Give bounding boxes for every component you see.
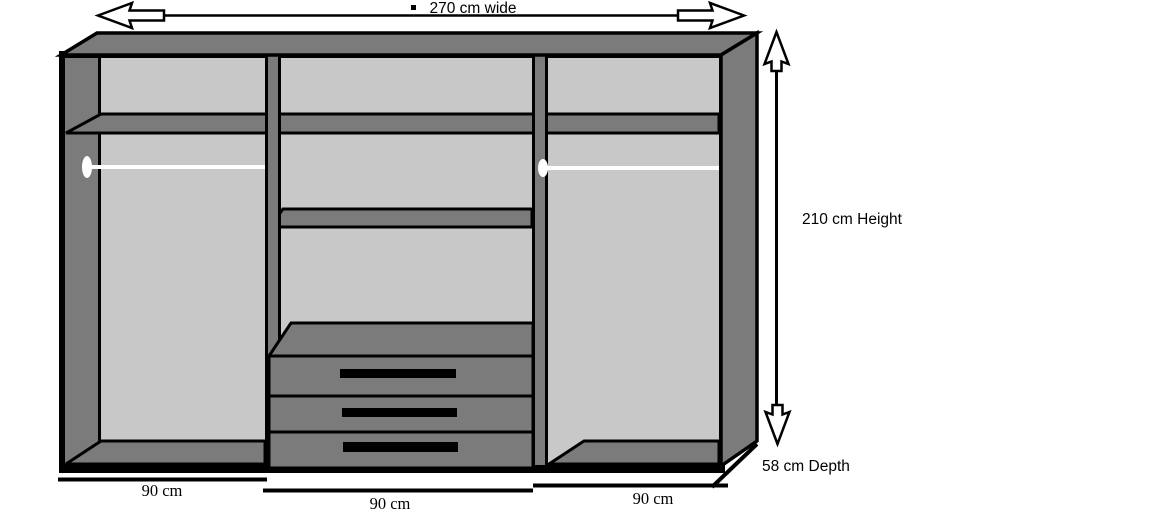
rail-end-left xyxy=(82,156,92,178)
wardrobe-dimension-diagram: 270 cm wide 210 cm Height 58 cm Depth 90… xyxy=(0,0,1164,522)
wardrobe xyxy=(59,33,757,473)
height-arrow xyxy=(765,32,790,444)
left-section-width-label: 90 cm xyxy=(142,481,183,500)
drawer-unit-top xyxy=(269,323,533,356)
drawer-1-handle xyxy=(340,369,456,378)
height-arrowhead-up xyxy=(765,32,789,71)
width-dimension-label: 270 cm wide xyxy=(429,0,516,17)
divider-right-side-face xyxy=(535,56,545,465)
width-arrowhead-left xyxy=(98,3,164,28)
rail-end-right xyxy=(538,159,548,177)
width-arrowhead-right xyxy=(678,3,744,28)
width-arrow xyxy=(98,3,744,28)
bullet-icon xyxy=(411,5,416,10)
drawer-unit xyxy=(269,323,533,468)
middle-section-width-label: 90 cm xyxy=(370,494,411,513)
drawer-2-handle xyxy=(342,408,457,417)
divider-right-back-edge xyxy=(545,56,548,465)
left-section-floor xyxy=(66,441,265,464)
depth-dimension-label: 58 cm Depth xyxy=(762,458,850,475)
height-dimension-label: 210 cm Height xyxy=(802,211,903,228)
diagram-canvas: 270 cm wide 210 cm Height 58 cm Depth 90… xyxy=(0,0,1164,522)
right-section-width-label: 90 cm xyxy=(633,489,674,508)
drawer-3-handle xyxy=(343,442,458,452)
top-face xyxy=(61,33,757,55)
height-arrowhead-down xyxy=(766,405,790,444)
middle-shelf xyxy=(270,209,532,227)
top-shelf xyxy=(66,114,719,133)
rail-bar-left xyxy=(84,165,265,169)
rail-bar-right xyxy=(541,166,719,170)
right-side-panel xyxy=(721,33,757,466)
